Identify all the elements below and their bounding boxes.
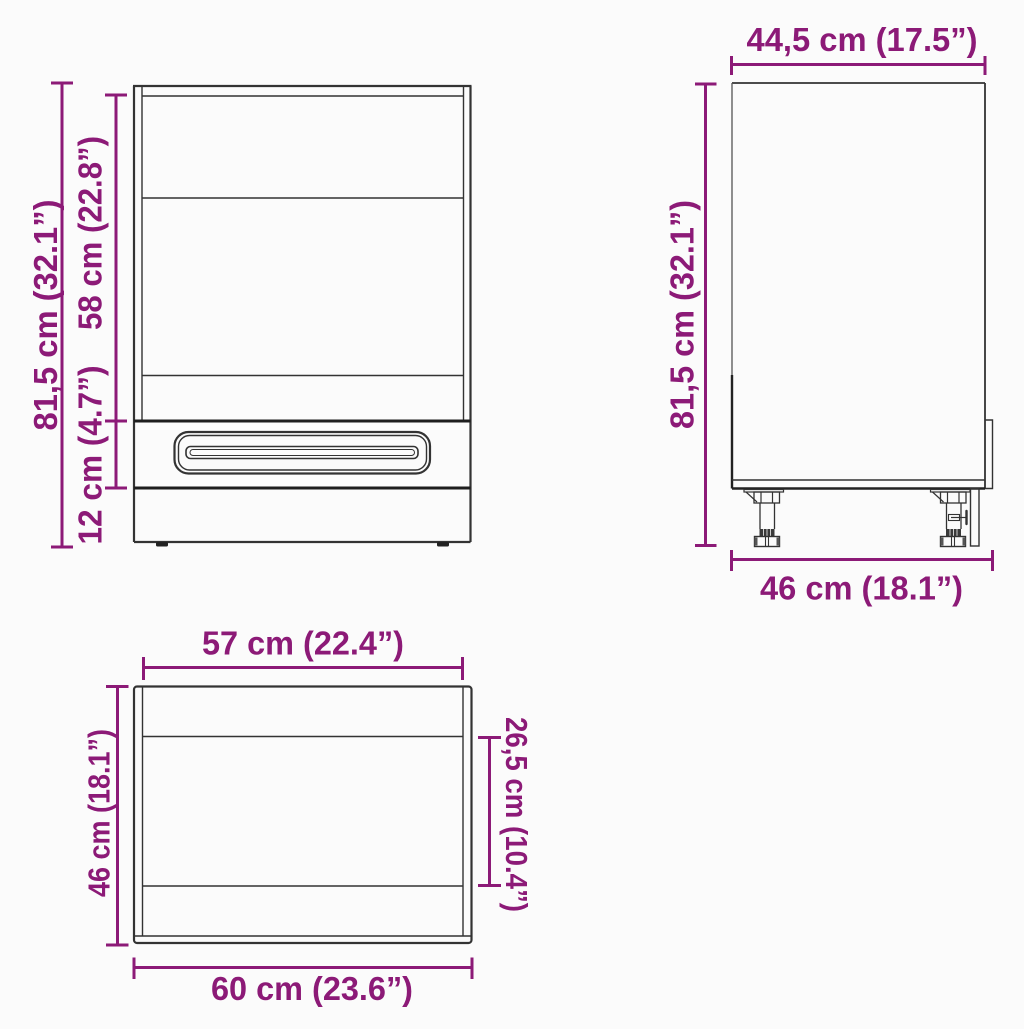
svg-text:46 cm (18.1”): 46 cm (18.1”) bbox=[82, 729, 117, 897]
svg-text:60 cm (23.6”): 60 cm (23.6”) bbox=[211, 970, 413, 1007]
svg-text:44,5 cm (17.5”): 44,5 cm (17.5”) bbox=[747, 21, 978, 58]
svg-text:12 cm (4.7”): 12 cm (4.7”) bbox=[72, 366, 109, 545]
svg-text:58 cm (22.8”): 58 cm (22.8”) bbox=[72, 136, 109, 330]
svg-text:26,5 cm (10.4”): 26,5 cm (10.4”) bbox=[499, 717, 534, 912]
svg-text:81,5 cm (32.1”): 81,5 cm (32.1”) bbox=[27, 200, 64, 431]
svg-text:81,5 cm (32.1”): 81,5 cm (32.1”) bbox=[664, 200, 701, 429]
svg-text:46 cm (18.1”): 46 cm (18.1”) bbox=[760, 570, 963, 607]
svg-text:57 cm (22.4”): 57 cm (22.4”) bbox=[202, 625, 404, 662]
